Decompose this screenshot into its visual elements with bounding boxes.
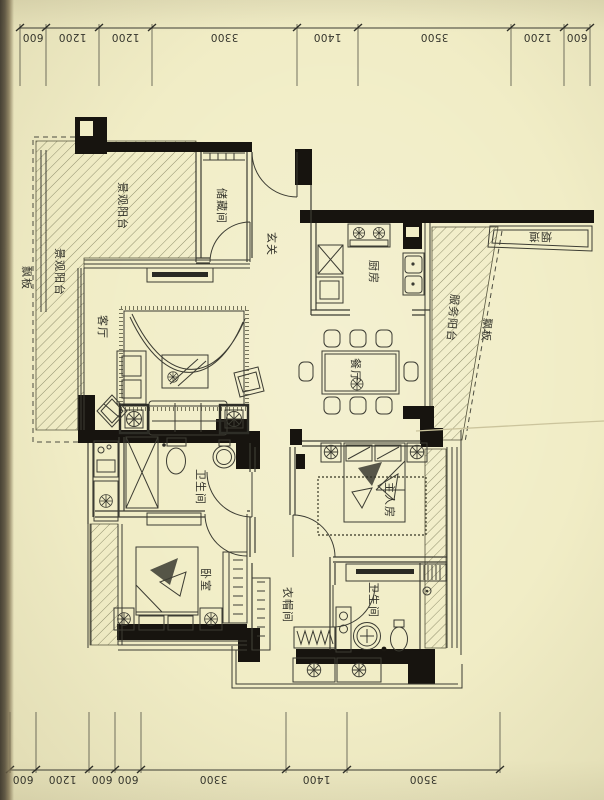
plant-icon (227, 412, 242, 427)
dining-stool (376, 397, 392, 414)
blanket-shard (358, 462, 382, 486)
master-bay-window-area (425, 449, 446, 648)
counter-slot (406, 227, 419, 237)
tub-cross (360, 629, 374, 643)
dining-stool (376, 330, 392, 347)
room-label-viewing-balcony-left: 景观阳台 (53, 248, 67, 296)
cabinet-knob (340, 612, 348, 620)
room-label-eave-left: 飘板 (20, 266, 34, 290)
dim-bottom-3: 600 (118, 773, 139, 785)
sink-drain (411, 262, 414, 265)
extension-lines-bottom (10, 712, 500, 773)
dim-bottom-2: 600 (92, 773, 113, 785)
master-bedroom-furniture (318, 443, 427, 535)
toilet-bowl (391, 627, 408, 651)
entry-door (252, 152, 297, 197)
room-label-master: 主人房 (383, 482, 396, 518)
dim-top-3: 3300 (211, 31, 239, 43)
dimension-row-bottom: 600 1200 600 600 3300 1400 3500 (6, 712, 504, 785)
room-label-eave-right: 飘板 (479, 317, 495, 342)
room-label-storage: 储藏间 (215, 188, 229, 224)
dining-stool (350, 330, 366, 347)
tall-cabinet (336, 607, 351, 652)
bedroom-door (205, 514, 247, 556)
floor-drain (382, 647, 387, 652)
table-plant-icon (168, 372, 179, 383)
dim-bottom-4: 3300 (200, 773, 228, 785)
dim-top-2: 1200 (112, 31, 140, 43)
laundry-tray (97, 460, 115, 472)
master-bay-window (447, 430, 461, 655)
dim-bottom-1: 1200 (49, 773, 77, 785)
wardrobe-hangers (229, 552, 243, 623)
living-top-window (84, 260, 250, 268)
kitchen-dining-right-window (425, 223, 430, 406)
room-label-bathroom1: 卫生间 (194, 469, 208, 505)
dining-stool (299, 362, 313, 381)
sink-counter (403, 253, 424, 295)
lamp-icon (118, 613, 131, 626)
room-label-viewing-balcony-top: 景观阳台 (116, 182, 130, 230)
dim-bottom-5: 1400 (303, 773, 331, 785)
dim-bottom-0: 600 (13, 773, 34, 785)
bedroom-bottom-sill (118, 641, 247, 650)
dim-top-7: 600 (567, 31, 588, 43)
rug-curve-motif (130, 314, 245, 372)
room-label-bathroom2: 卫生间 (367, 582, 381, 618)
lamp-icon (324, 445, 338, 459)
dim-bottom-6: 3500 (410, 773, 438, 785)
mirror-slot (356, 569, 414, 574)
storage-shelves (203, 153, 245, 160)
toilet-bowl (167, 448, 186, 474)
dimension-row-top: 600 1200 1200 3300 1400 3500 1200 600 (16, 24, 594, 86)
tv-set (122, 356, 141, 376)
diamond-end-table (97, 395, 127, 427)
plant-icon (127, 412, 142, 427)
burner-icon (373, 227, 384, 238)
room-label-dining: 餐厅 (349, 358, 363, 382)
stove-front (350, 240, 388, 246)
storage-door (210, 222, 250, 262)
shower-cross (126, 437, 158, 508)
lamp-icon (205, 613, 218, 626)
dim-top-5: 3500 (421, 31, 449, 43)
dim-top-6: 1200 (524, 31, 552, 43)
dining-stool (324, 330, 340, 347)
living-window-slot (152, 272, 208, 277)
extension-lines-top (20, 24, 590, 86)
room-label-entry: 玄关 (265, 232, 279, 256)
master-bedroom-door (293, 515, 335, 557)
planter-drain-icon (307, 663, 321, 677)
cloak-wardrobe-hangers (257, 582, 265, 636)
dining-stool (350, 397, 366, 414)
dim-top-1: 1200 (59, 31, 87, 43)
toilet-tank (394, 620, 404, 627)
clothes-zigzag (297, 631, 333, 644)
room-label-living: 客厅 (96, 315, 110, 339)
floor-drain (162, 443, 166, 447)
room-label-flue: 烟道 (528, 230, 552, 244)
floorplan-drawing: 600 1200 1200 3300 1400 3500 1200 600 60… (0, 0, 604, 800)
fridge-cross (318, 245, 343, 274)
doors (205, 152, 375, 627)
sink-drain (411, 282, 414, 285)
room-label-cloakroom: 衣帽间 (281, 587, 295, 623)
scanned-floorplan-page: 600 1200 1200 3300 1400 3500 1200 600 60… (0, 0, 604, 800)
tv-shelf (122, 380, 141, 398)
dining-stool (404, 362, 418, 381)
rug-fringe (121, 308, 247, 409)
living-room-furniture (97, 308, 264, 435)
laundry-knob (98, 447, 104, 453)
dining-stool (324, 397, 340, 414)
dim-top-0: 600 (23, 31, 44, 43)
rug (124, 311, 244, 406)
bathroom1-door (207, 472, 252, 517)
planter-drain-icon (352, 663, 366, 677)
bedroom-furniture (114, 547, 247, 630)
wash-basin-inner (217, 450, 232, 465)
room-label-bedroom: 卧室 (199, 568, 213, 592)
burner-icon (353, 227, 364, 238)
bed-fold (136, 585, 198, 612)
washer-icon (100, 495, 113, 508)
drain-center (426, 590, 429, 593)
laundry-knob (107, 445, 111, 449)
dim-top-4: 1400 (314, 31, 342, 43)
bathroom1-fixtures (94, 437, 235, 521)
coffee-table (162, 355, 208, 388)
lamp-icon (410, 445, 424, 459)
room-label-kitchen: 厨房 (367, 260, 380, 284)
kitchen-cabinet-inner (320, 281, 339, 299)
bedroom-top-sill (147, 513, 201, 525)
